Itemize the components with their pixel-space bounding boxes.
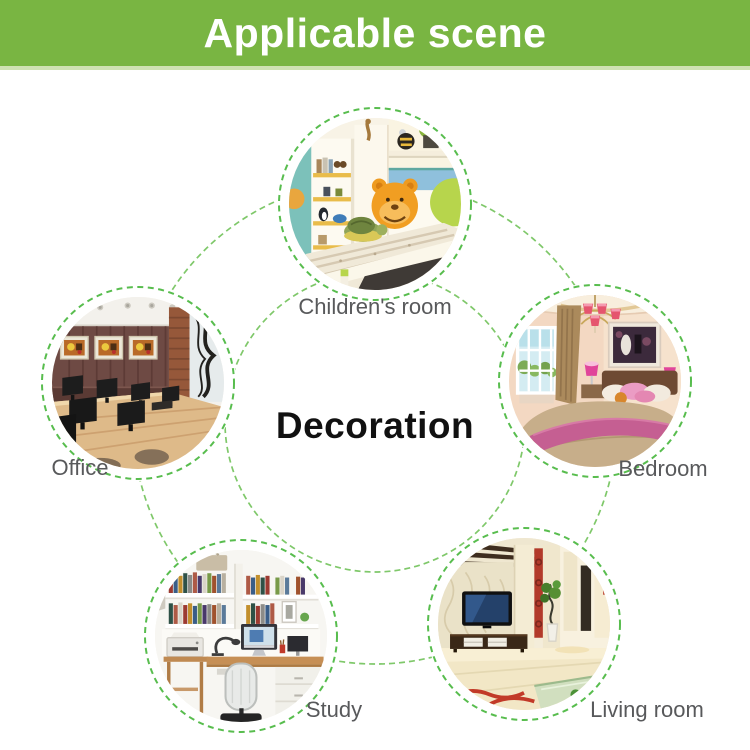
center-label: Decoration [276, 405, 474, 447]
label-office: Office [51, 455, 108, 481]
office-photo [52, 297, 224, 469]
scene-living-room [426, 526, 622, 722]
label-living-room: Living room [590, 697, 704, 723]
scene-office [40, 285, 236, 481]
children-room-photo [289, 118, 461, 290]
label-children-room: Children's room [298, 294, 451, 320]
living-room-photo [438, 538, 610, 710]
scene-bedroom [497, 283, 693, 479]
label-study: Study [306, 697, 362, 723]
page: Applicable scene [0, 0, 750, 750]
bedroom-photo [509, 295, 681, 467]
scene-children-room [277, 106, 473, 302]
study-photo [155, 550, 327, 722]
label-bedroom: Bedroom [618, 456, 707, 482]
